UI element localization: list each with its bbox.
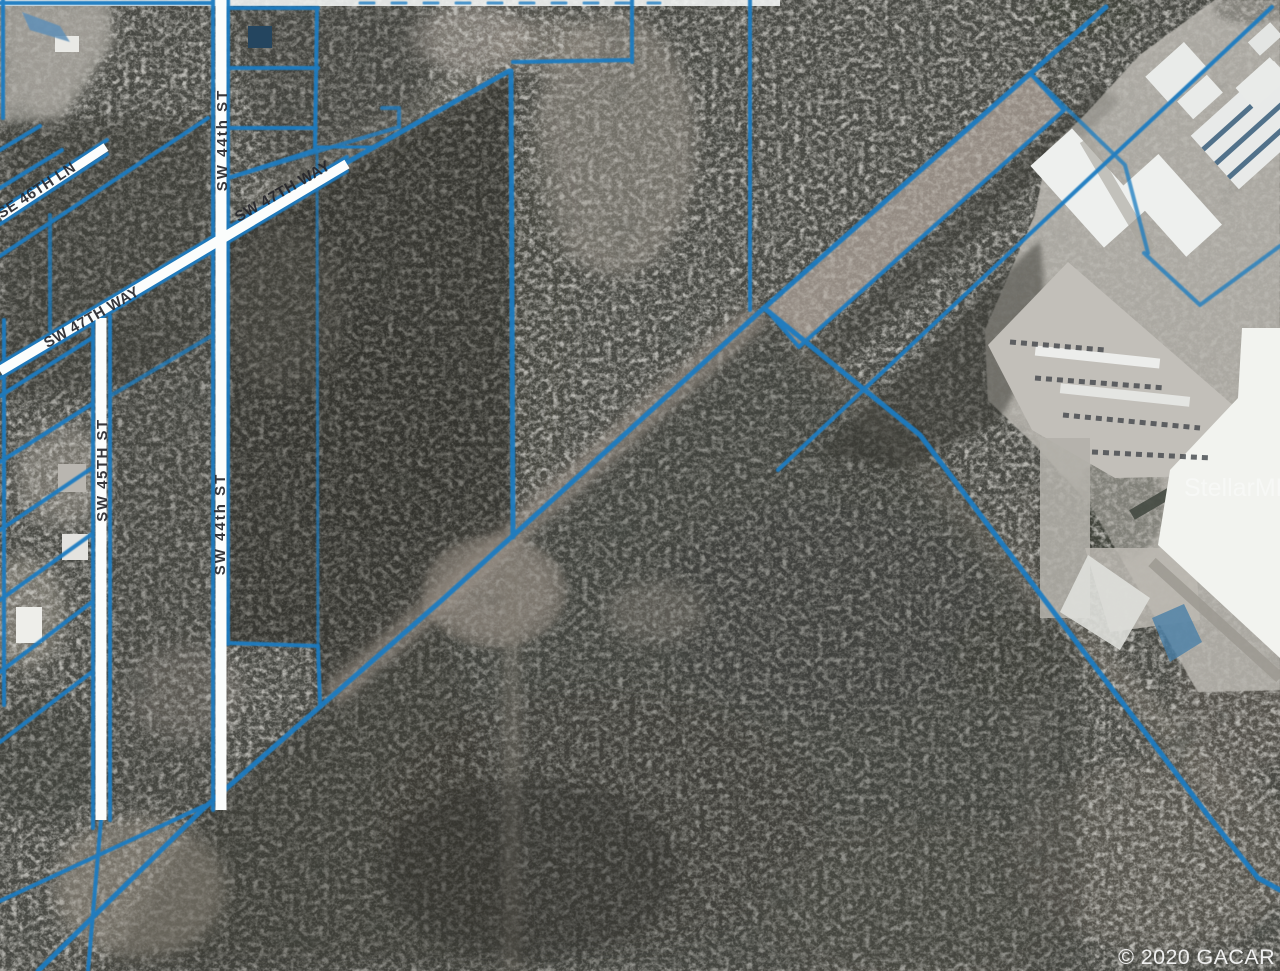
svg-text:SW 44th ST: SW 44th ST: [212, 473, 229, 576]
svg-text:SW 45TH ST: SW 45TH ST: [94, 418, 111, 521]
svg-text:StellarMLS: StellarMLS: [1184, 474, 1280, 502]
svg-text:SW 44th ST: SW 44th ST: [214, 89, 231, 192]
svg-text:© 2020 GACAR: © 2020 GACAR: [1118, 945, 1275, 969]
